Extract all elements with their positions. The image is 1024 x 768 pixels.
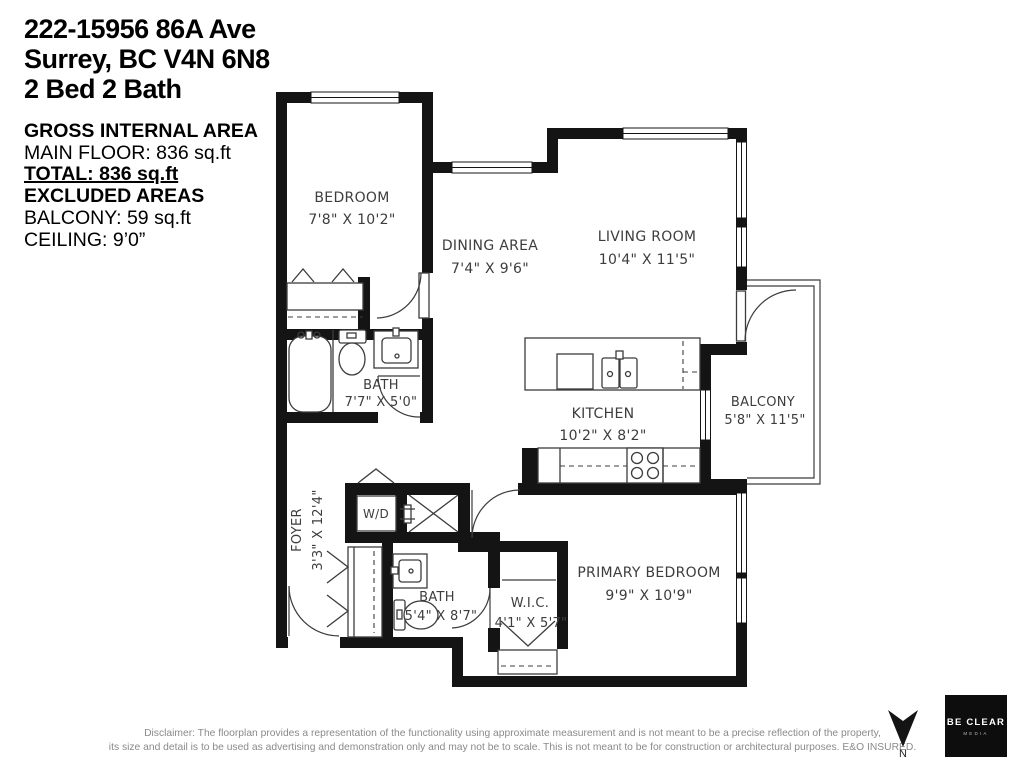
bath2-dims: 5'4" X 8'7" (405, 609, 478, 624)
disclaimer-line2: its size and detail is to be used as adv… (90, 741, 935, 755)
laundry-closet (357, 469, 396, 531)
kitchen-counter (538, 448, 700, 483)
balcony-label: BALCONY (731, 395, 795, 410)
logo-line1: BE CLEAR (947, 717, 1005, 728)
wic-dims: 4'1" X 5'7" (495, 616, 568, 631)
kitchen-label: KITCHEN (572, 406, 635, 422)
be-clear-media-logo: BE CLEAR MEDIA (945, 695, 1007, 757)
foyer-dims: 3'3" X 12'4" (311, 489, 326, 570)
kitchen-dims: 10'2" X 8'2" (559, 428, 646, 444)
floorplan-page: { "header": { "address_line1": "222-1595… (0, 0, 1024, 768)
primary-window-1 (737, 493, 747, 573)
sink-1 (374, 328, 418, 368)
balcony-railing (747, 280, 820, 484)
sink-2 (391, 554, 427, 588)
shower-valve (404, 505, 411, 523)
foyer-closet (327, 547, 382, 637)
bedroom-door (377, 273, 429, 318)
logo-line2: MEDIA (963, 731, 988, 736)
dining-window (452, 162, 532, 173)
bedroom-closet (287, 269, 363, 317)
bath1-dims: 7'7" X 5'0" (345, 395, 418, 410)
wd-label: W/D (363, 507, 389, 521)
primary-dims: 9'9" X 10'9" (605, 588, 692, 604)
floorplan-drawing: BEDROOM 7'8" X 10'2" DINING AREA 7'4" X … (0, 0, 1024, 768)
bathtub (289, 336, 331, 412)
bedroom-window (311, 92, 399, 103)
toilet-1 (339, 330, 366, 375)
dining-label: DINING AREA (442, 238, 538, 254)
living-top-window (623, 128, 728, 139)
living-label: LIVING ROOM (598, 229, 697, 245)
entry-door (289, 586, 339, 636)
bath2-label: BATH (419, 590, 455, 605)
hall-door (472, 490, 520, 538)
kitchen-island (525, 338, 700, 390)
foyer-label: FOYER (290, 508, 305, 552)
disclaimer-line1: Disclaimer: The floorplan provides a rep… (90, 727, 935, 741)
wic-label: W.I.C. (511, 596, 549, 611)
disclaimer: Disclaimer: The floorplan provides a rep… (90, 727, 935, 754)
shower (400, 495, 458, 532)
bedroom-dims: 7'8" X 10'2" (308, 212, 395, 228)
living-dims: 10'4" X 11'5" (599, 252, 695, 268)
living-side-window (737, 142, 747, 218)
bath1-label: BATH (363, 378, 399, 393)
primary-window-2 (737, 578, 747, 623)
kitchen-window (701, 390, 711, 440)
living-side-window-2 (737, 227, 747, 267)
bedroom-label: BEDROOM (314, 190, 389, 206)
balcony-dims: 5'8" X 11'5" (724, 413, 805, 428)
north-label: N (880, 748, 926, 760)
primary-label: PRIMARY BEDROOM (577, 565, 720, 581)
dining-dims: 7'4" X 9'6" (451, 261, 529, 277)
balcony-door (737, 290, 797, 341)
stove (627, 448, 663, 483)
